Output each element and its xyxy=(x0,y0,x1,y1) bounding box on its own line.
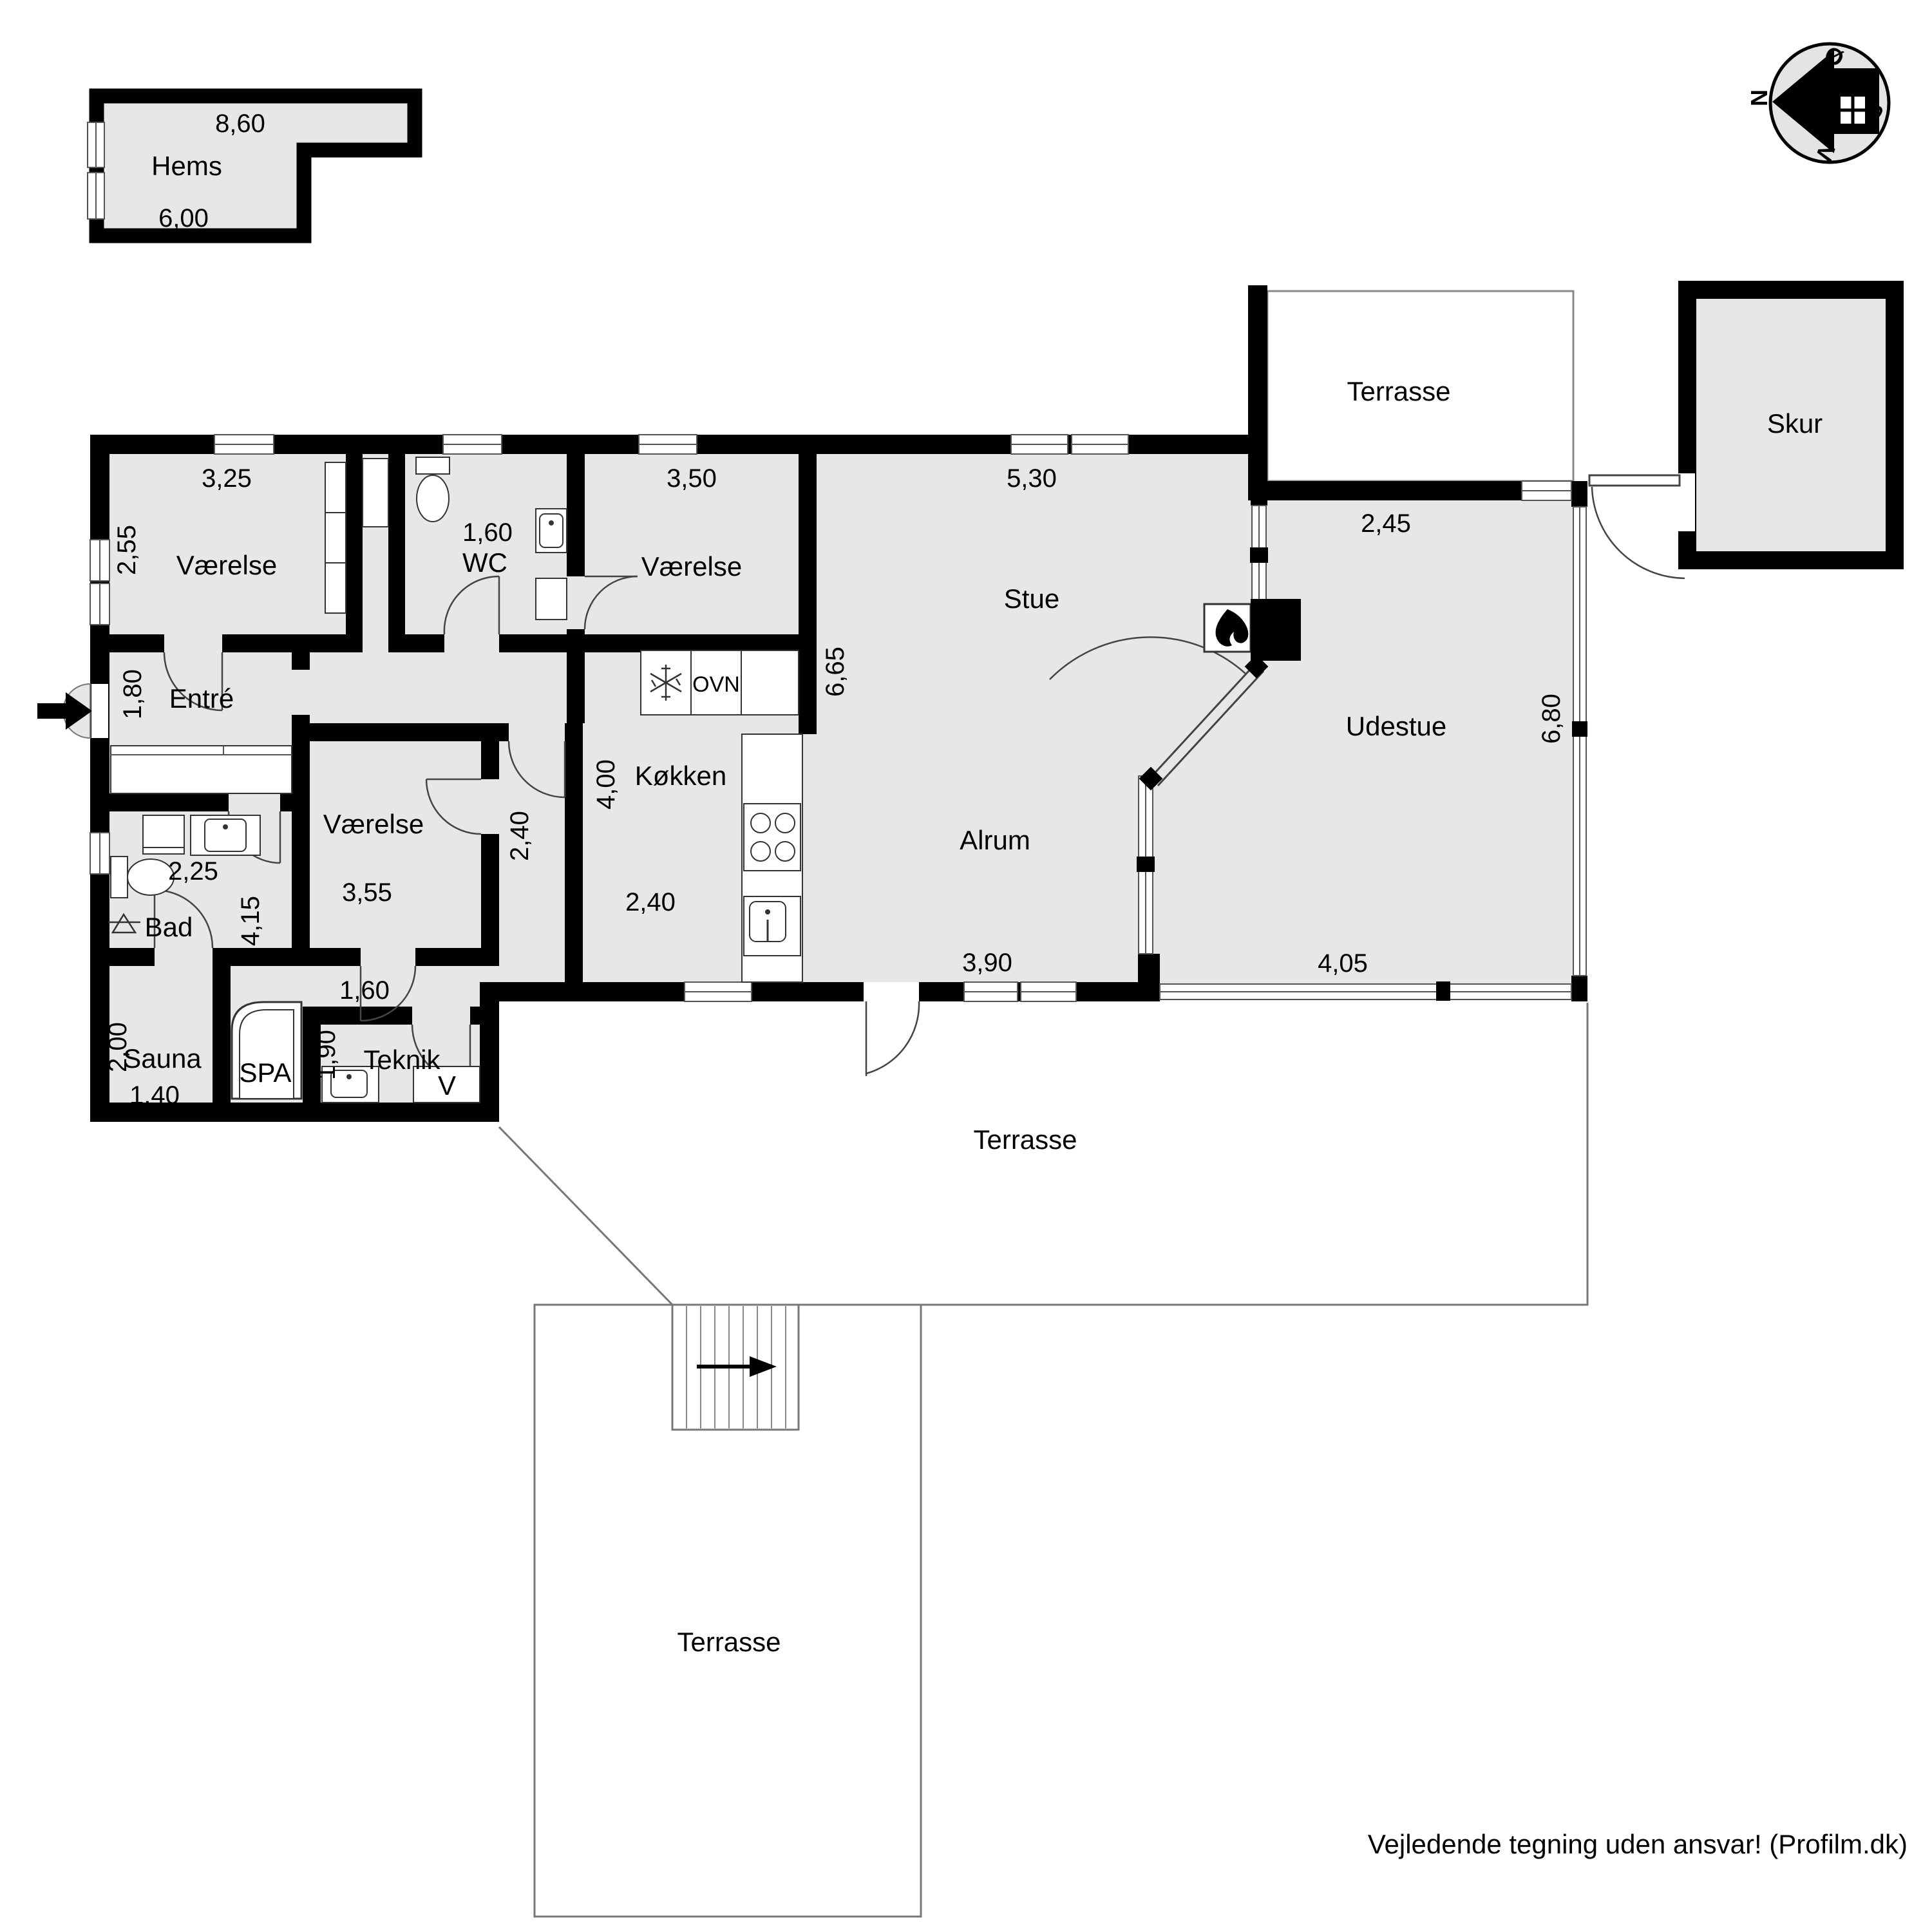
entre-label: Entré xyxy=(169,683,234,714)
alrum-label: Alrum xyxy=(960,825,1030,855)
udestue-label: Udestue xyxy=(1346,711,1446,741)
wc-toilet xyxy=(416,457,450,522)
stairs xyxy=(672,1305,799,1430)
skur-door-arc xyxy=(1592,487,1685,578)
koekken-label: Køkken xyxy=(635,761,726,791)
kitchen-sink xyxy=(744,896,800,956)
udestue-dim-bottom: 4,05 xyxy=(1318,949,1368,978)
terrasse-top-label: Terrasse xyxy=(1347,376,1450,406)
skur-room: Skur xyxy=(1589,290,1895,578)
koekken-dim-w: 2,40 xyxy=(625,888,676,916)
wc-label: WC xyxy=(462,547,507,578)
teknik-dim-h: 1,90 xyxy=(312,1030,341,1080)
hems-dim-top: 8,60 xyxy=(215,109,265,138)
entre-hall-door-gap xyxy=(292,670,310,715)
vaerelse3-dim-h: 2,40 xyxy=(506,811,534,861)
hems-dim-bottom: 6,00 xyxy=(158,204,209,232)
skur-door-leaf xyxy=(1589,475,1680,486)
stue-label: Stue xyxy=(1004,583,1059,614)
bad-dim-w: 2,25 xyxy=(168,857,218,885)
bad-dim-h: 4,15 xyxy=(236,896,265,946)
garderobe xyxy=(111,746,292,793)
disclaimer-text: Vejledende tegning uden ansvar! (Profilm… xyxy=(1368,1829,1908,1859)
fireplace xyxy=(1204,599,1301,661)
koekken-dim-h: 4,00 xyxy=(592,759,620,810)
bad-label: Bad xyxy=(145,912,193,942)
hems-label: Hems xyxy=(151,151,222,181)
bad-toilet xyxy=(111,857,174,898)
vaerelse1-label: Værelse xyxy=(176,550,277,580)
sauna-dim-w: 1,40 xyxy=(129,1081,180,1110)
skur-label: Skur xyxy=(1767,408,1823,439)
entrance-door-gap xyxy=(91,684,108,738)
hems-room: 8,60 Hems 6,00 xyxy=(88,96,415,236)
wc-dim: 1,60 xyxy=(462,518,513,547)
wardrobe xyxy=(325,462,346,613)
kitchen-counter xyxy=(742,734,802,982)
stue-dim-w: 5,30 xyxy=(1007,464,1057,493)
bad-sink xyxy=(191,815,260,855)
teknik-label: Teknik xyxy=(363,1045,440,1075)
terrasse-bottom-label: Terrasse xyxy=(677,1627,781,1657)
vestibule-dim: 1,60 xyxy=(339,976,390,1005)
udestue-dim-h: 6,80 xyxy=(1537,694,1566,744)
vaerelse1-dim-h: 2,55 xyxy=(113,525,141,575)
vaerelse3-dim-w: 3,55 xyxy=(342,878,392,907)
stue-dim-h: 6,65 xyxy=(821,647,849,697)
vaerelse2-label: Værelse xyxy=(641,551,742,582)
vaerelse2-dim-w: 3,50 xyxy=(667,464,717,493)
sauna-label: Sauna xyxy=(123,1043,202,1074)
terrace-outline: Terrasse Terrasse xyxy=(499,1003,1587,1917)
spa-label: SPA xyxy=(240,1057,292,1088)
wc-sink xyxy=(536,509,567,553)
floorplan-page: 8,60 Hems 6,00 N Ø S V Skur Terrasse xyxy=(0,0,1932,1932)
chimney xyxy=(1251,599,1301,661)
udestue-dim-top: 2,45 xyxy=(1361,509,1411,538)
wc-cabinet xyxy=(536,578,567,620)
vaerelse3-label: Værelse xyxy=(323,809,424,839)
stove xyxy=(744,804,800,871)
closet xyxy=(363,459,388,527)
compass-n-label: N xyxy=(1746,90,1772,106)
terrasse-top: Terrasse xyxy=(1267,291,1573,481)
vaerelse1-dim-w: 3,25 xyxy=(202,464,252,493)
compass-rose: N Ø S V xyxy=(1746,41,1889,165)
entre-dim: 1,80 xyxy=(118,669,147,719)
terrasse-mid-label: Terrasse xyxy=(973,1124,1077,1155)
alrum-dim-w: 3,90 xyxy=(962,949,1012,977)
floorplan-canvas: 8,60 Hems 6,00 N Ø S V Skur Terrasse xyxy=(0,0,1932,1932)
oven-label: OVN xyxy=(692,672,740,697)
teknik-v-label: V xyxy=(438,1070,456,1101)
